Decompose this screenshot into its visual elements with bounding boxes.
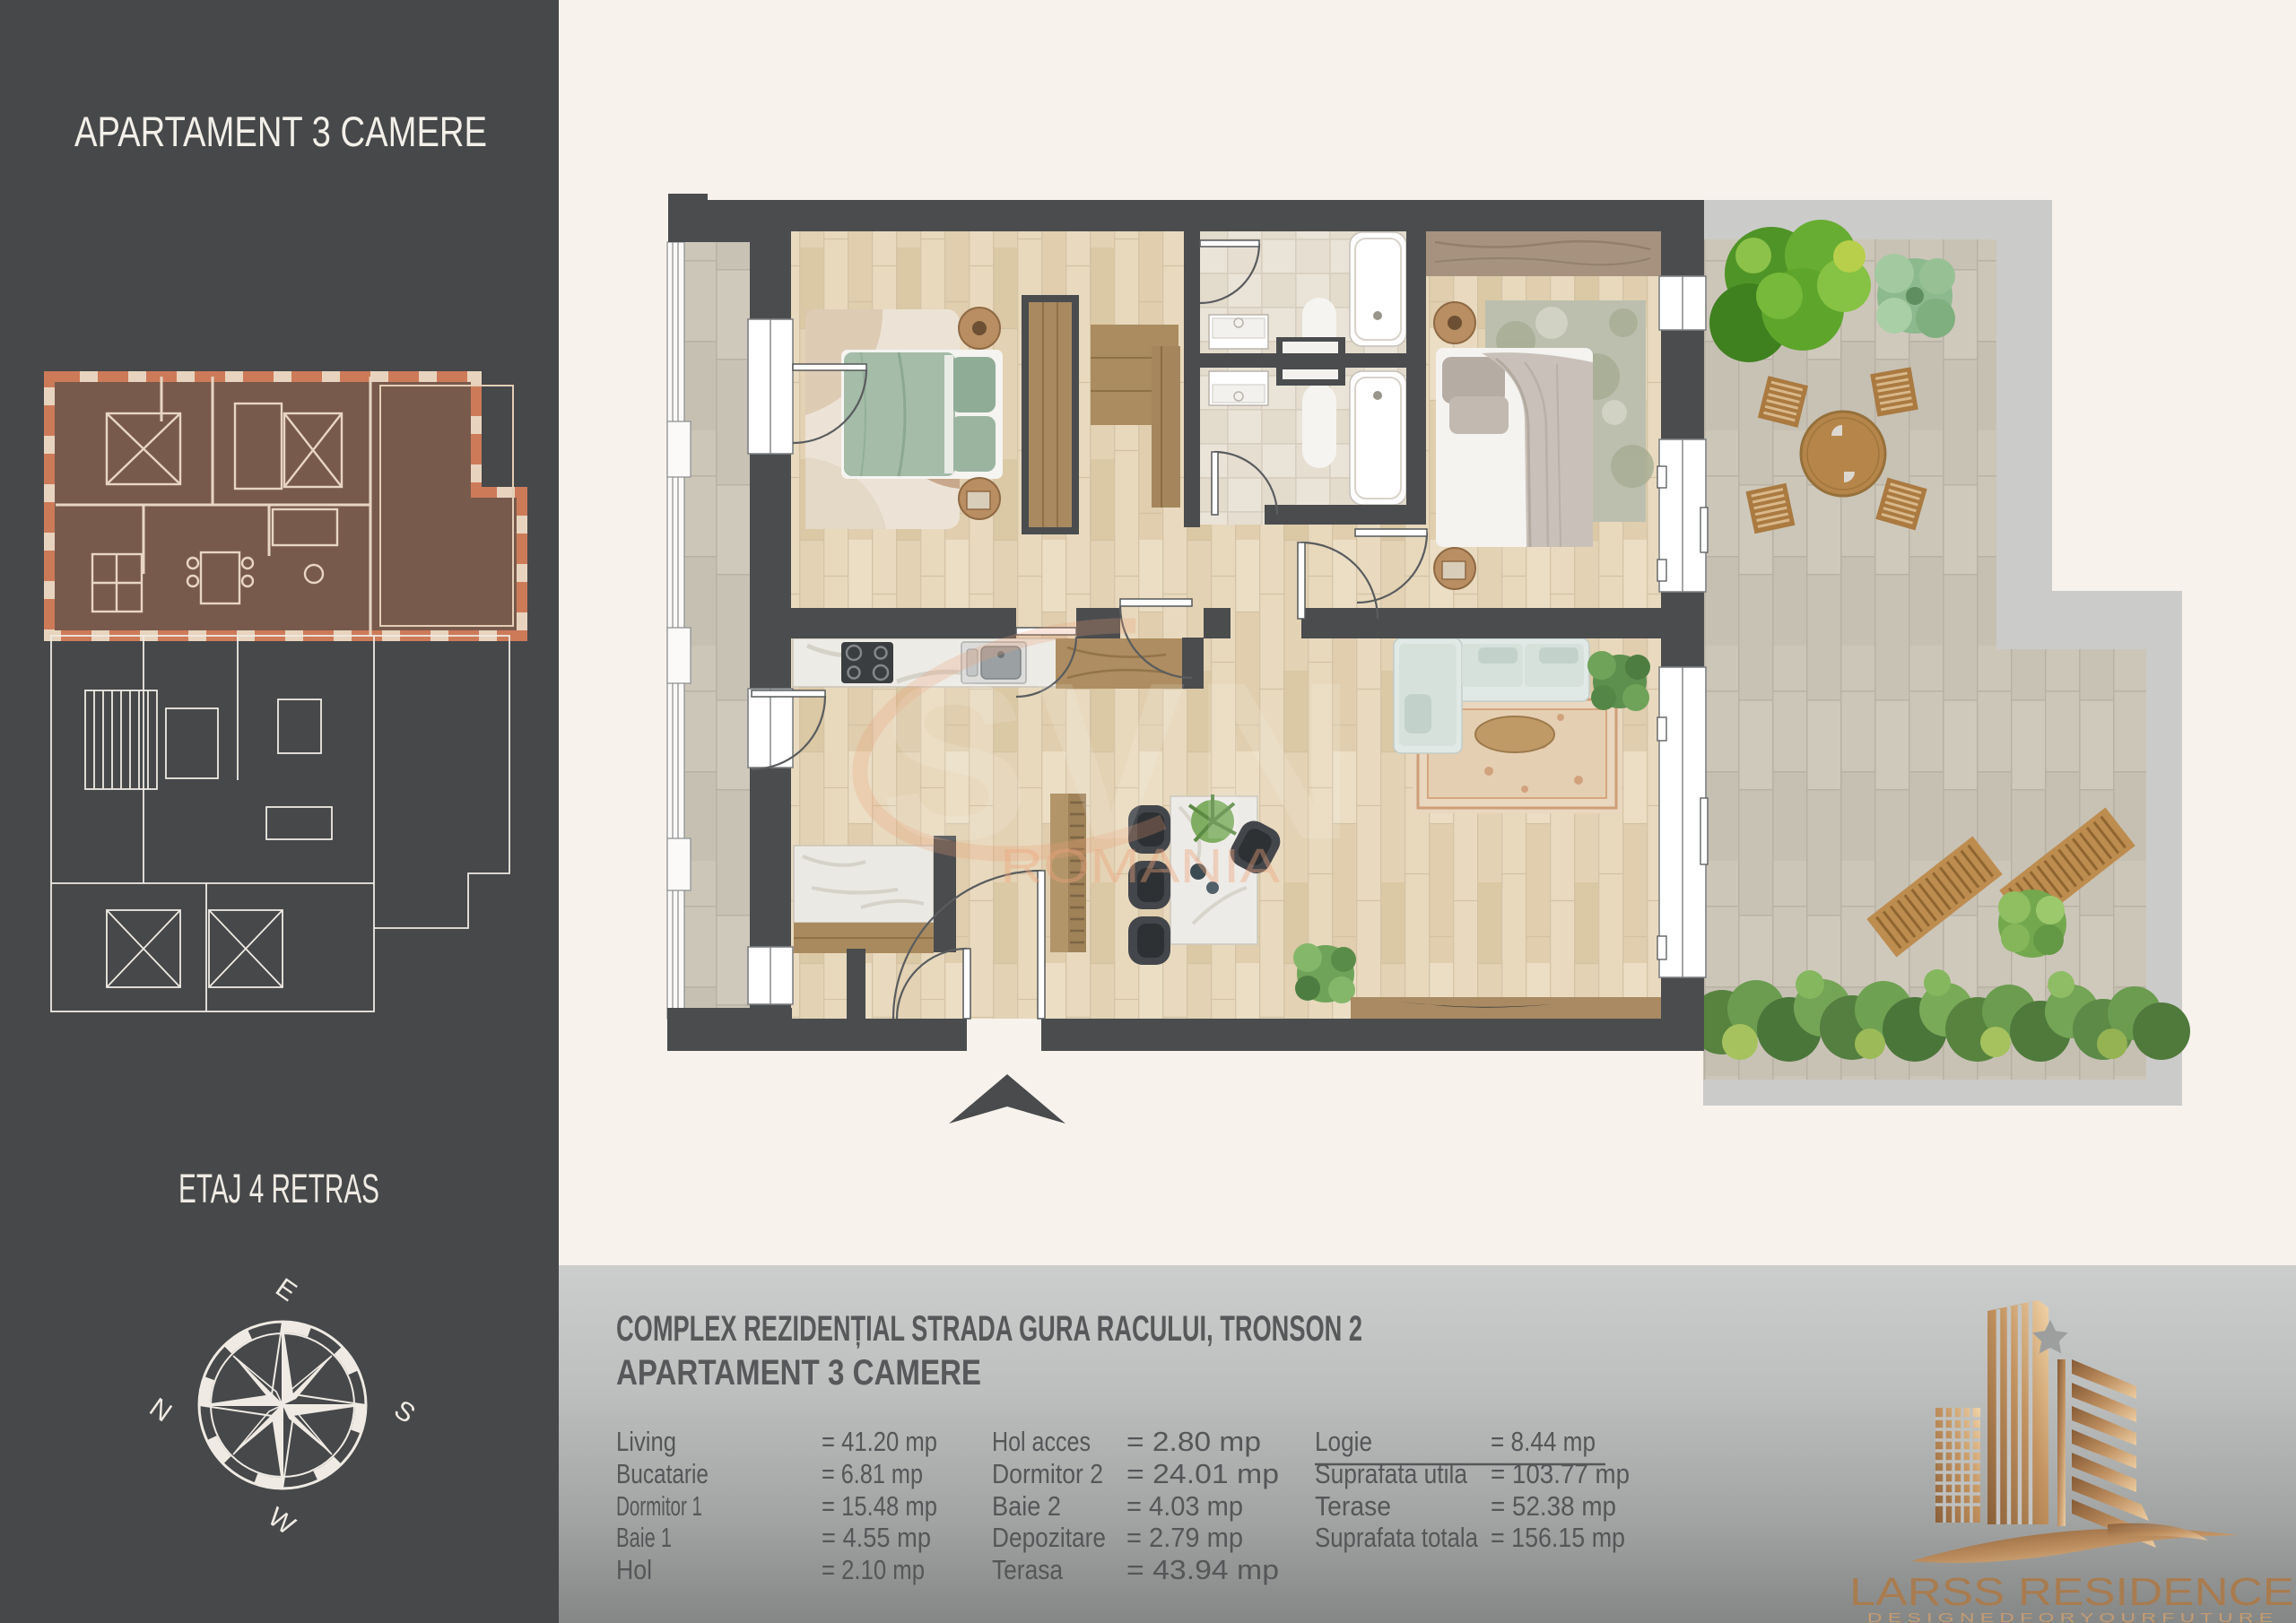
svg-text:Hol acces: Hol acces	[992, 1426, 1091, 1457]
svg-text:= 24.01 mp: = 24.01 mp	[1126, 1458, 1279, 1489]
svg-text:= 4.55 mp: = 4.55 mp	[822, 1522, 931, 1553]
svg-text:= 2.10 mp: = 2.10 mp	[822, 1554, 925, 1585]
svg-text:Bucatarie: Bucatarie	[616, 1458, 709, 1489]
svg-text:LARSS RESIDENCE: LARSS RESIDENCE	[1849, 1570, 2294, 1614]
svg-text:Hol: Hol	[616, 1554, 652, 1585]
svg-text:Suprafata totala: Suprafata totala	[1315, 1522, 1479, 1553]
svg-text:ETAJ 4 RETRAS: ETAJ 4 RETRAS	[178, 1166, 379, 1211]
svg-text:COMPLEX REZIDENȚIAL STRADA GUR: COMPLEX REZIDENȚIAL STRADA GURA RACULUI,…	[616, 1309, 1362, 1349]
svg-text:ROMANIA: ROMANIA	[1000, 839, 1280, 893]
svg-text:= 43.94 mp: = 43.94 mp	[1126, 1554, 1279, 1585]
svg-text:Baie 1: Baie 1	[616, 1522, 672, 1553]
svg-text:Terase: Terase	[1315, 1490, 1391, 1522]
svg-text:= 8.44 mp: = 8.44 mp	[1491, 1426, 1596, 1457]
svg-text:= 41.20 mp: = 41.20 mp	[822, 1426, 937, 1457]
svg-text:Depozitare: Depozitare	[992, 1522, 1106, 1553]
svg-text:Baie 2: Baie 2	[992, 1490, 1061, 1522]
svg-text:= 2.79 mp: = 2.79 mp	[1126, 1522, 1243, 1553]
svg-text:Terasa: Terasa	[992, 1554, 1064, 1585]
svg-text:= 103.77 mp: = 103.77 mp	[1491, 1458, 1630, 1489]
svg-text:= 4.03 mp: = 4.03 mp	[1126, 1490, 1243, 1522]
svg-text:Suprafata utila: Suprafata utila	[1315, 1458, 1468, 1489]
svg-text:APARTAMENT 3 CAMERE: APARTAMENT 3 CAMERE	[74, 108, 487, 155]
svg-text:APARTAMENT 3 CAMERE: APARTAMENT 3 CAMERE	[616, 1353, 981, 1393]
svg-text:= 2.80 mp: = 2.80 mp	[1126, 1426, 1261, 1457]
svg-text:Dormitor 1: Dormitor 1	[616, 1490, 702, 1522]
svg-text:= 6.81 mp: = 6.81 mp	[822, 1458, 923, 1489]
svg-text:Living: Living	[616, 1426, 676, 1457]
svg-text:= 52.38 mp: = 52.38 mp	[1491, 1490, 1616, 1522]
svg-text:= 156.15 mp: = 156.15 mp	[1491, 1522, 1625, 1553]
svg-text:= 15.48 mp: = 15.48 mp	[822, 1490, 937, 1522]
svg-text:D E S I G N E D F O R Y O: D E S I G N E D F O R Y O U R F U T U R …	[1867, 1610, 2273, 1623]
svg-text:Logie: Logie	[1315, 1426, 1372, 1457]
svg-text:Dormitor 2: Dormitor 2	[992, 1458, 1103, 1489]
